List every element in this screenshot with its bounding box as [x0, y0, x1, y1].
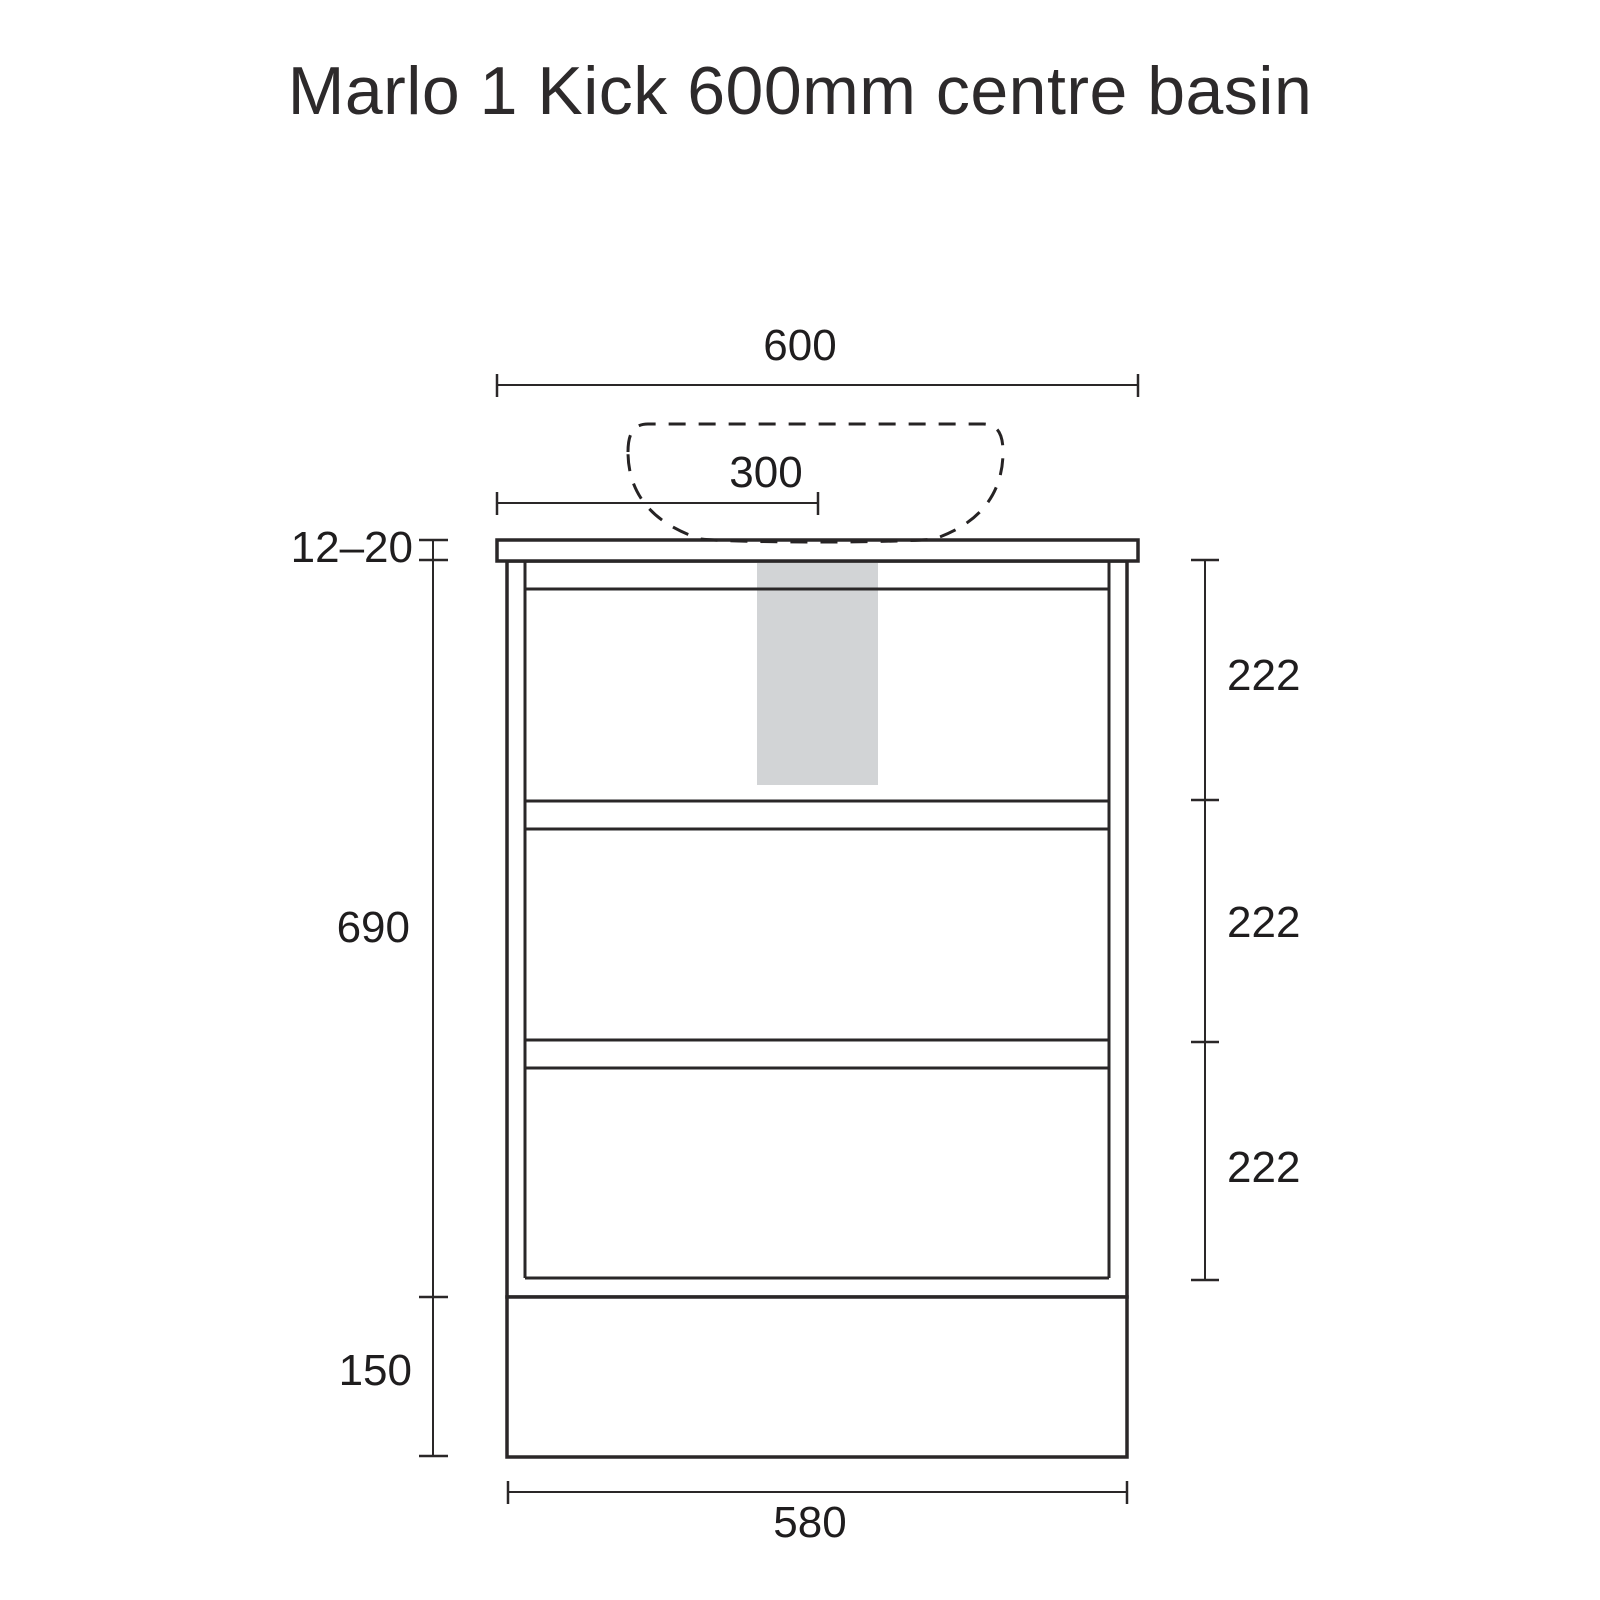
dim-label-basin-centre: 300 — [729, 448, 802, 497]
dim-label-drawer-2-height: 222 — [1227, 898, 1300, 947]
drawing-canvas: Marlo 1 Kick 600mm centre basin 600 300 — [0, 0, 1600, 1600]
dim-label-top-thickness: 12–20 — [291, 523, 413, 572]
dim-label-drawer-3-height: 222 — [1227, 1143, 1300, 1192]
drawing-title: Marlo 1 Kick 600mm centre basin — [288, 53, 1313, 129]
dim-label-kick-width: 580 — [773, 1498, 846, 1547]
plumbing-zone-shading — [757, 563, 878, 785]
vanity-elevation-drawing: Marlo 1 Kick 600mm centre basin 600 300 — [0, 0, 1600, 1600]
countertop-outline — [497, 540, 1138, 561]
dim-label-overall-width: 600 — [763, 321, 836, 370]
dim-label-drawer-1-height: 222 — [1227, 651, 1300, 700]
dim-label-body-height: 690 — [337, 903, 410, 952]
dim-label-kick-height: 150 — [339, 1346, 412, 1395]
kick-outline — [507, 1297, 1127, 1457]
